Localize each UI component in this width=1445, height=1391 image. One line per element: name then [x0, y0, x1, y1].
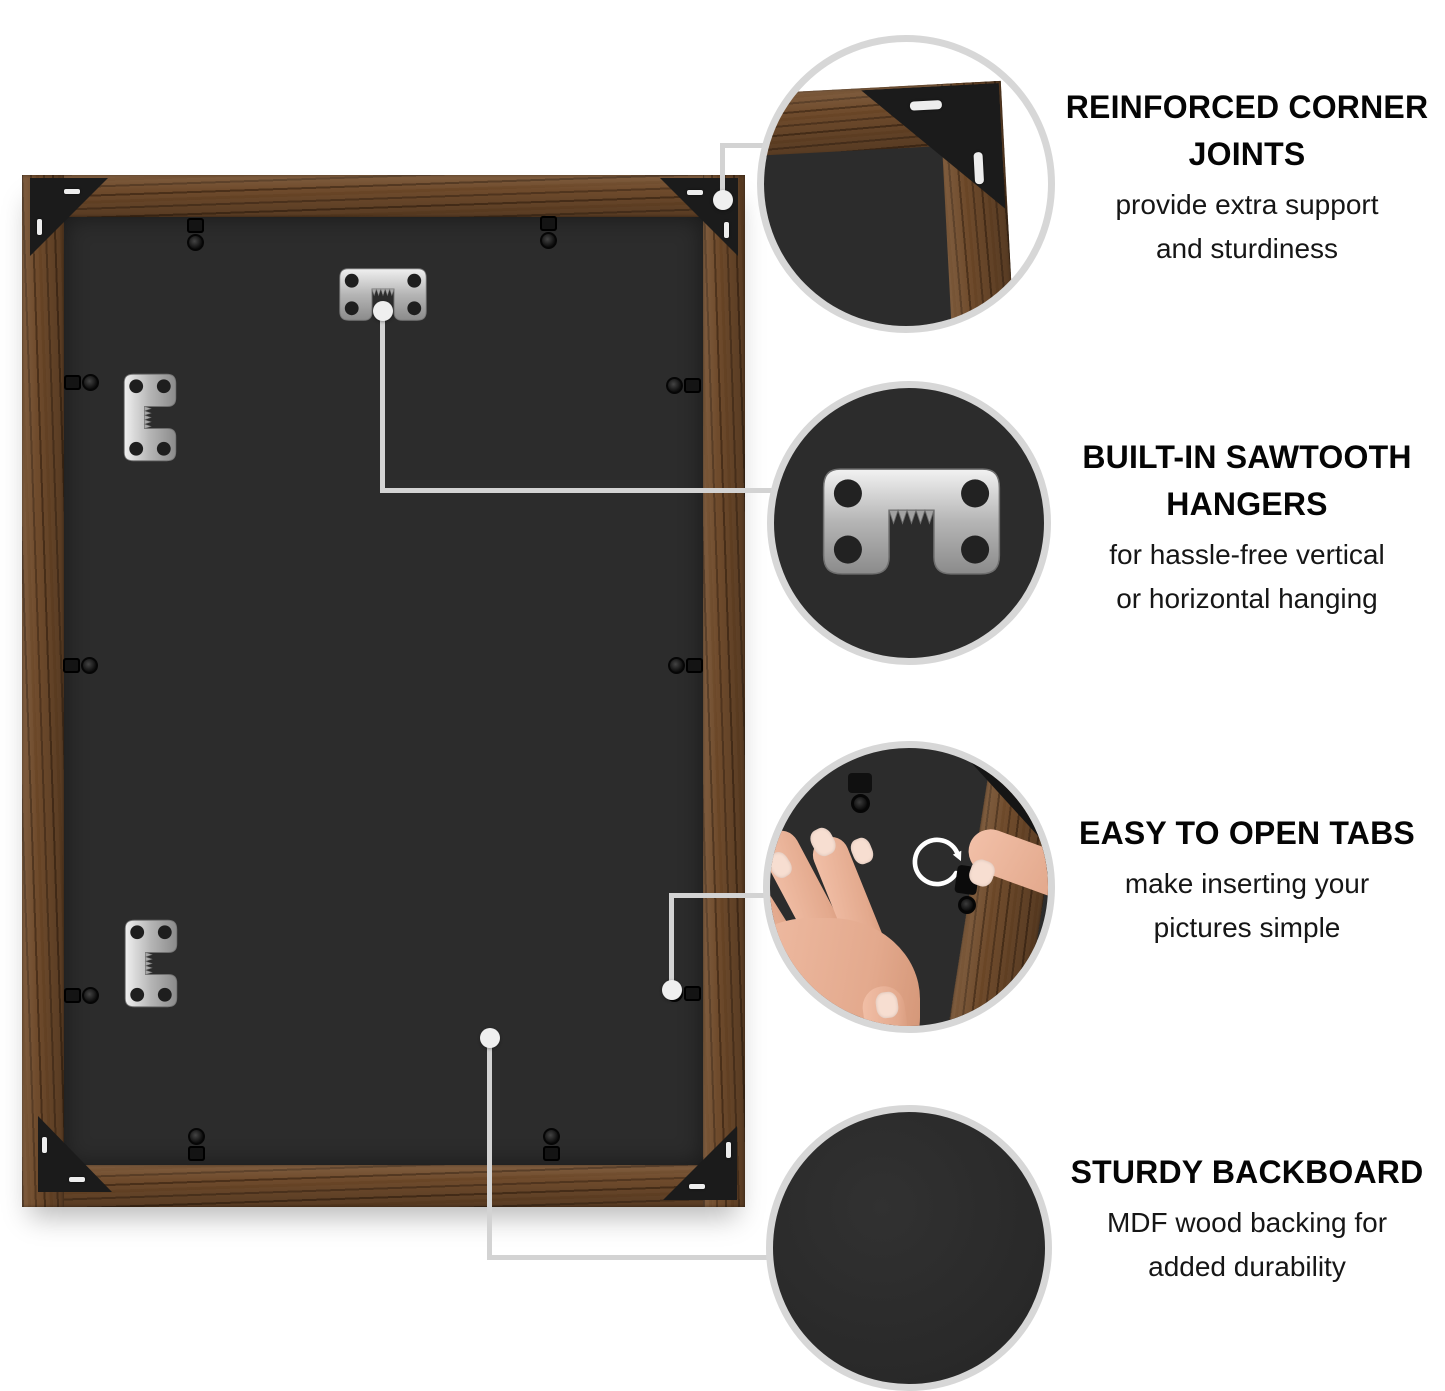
- frame-wood-bottom: [22, 1165, 745, 1207]
- flex-tab-left-3: [64, 987, 99, 1004]
- zoom-staple: [910, 100, 942, 111]
- callout-title-line: JOINTS: [1047, 131, 1445, 178]
- frame-wood-top: [22, 175, 745, 217]
- leader-dot-tab: [662, 980, 682, 1000]
- sawtooth-hanger-zoom: [818, 465, 1005, 578]
- flex-tab-right-1: [666, 377, 701, 394]
- callout-desc-line: or horizontal hanging: [1047, 577, 1445, 621]
- leader-line-hanger: [380, 488, 772, 493]
- callout-title-line: HANGERS: [1047, 481, 1445, 528]
- staple: [726, 1142, 731, 1158]
- flex-tab-top-1: [187, 218, 204, 251]
- leader-line-backboard: [487, 1038, 492, 1260]
- callout-desc-line: for hassle-free vertical: [1047, 533, 1445, 577]
- flex-tab-top-2: [540, 216, 557, 249]
- sawtooth-hanger-left-top: [122, 372, 179, 464]
- callout-title-line: STURDY BACKBOARD: [1047, 1149, 1445, 1196]
- callout-desc-line: added durability: [1047, 1245, 1445, 1289]
- flex-tab-bottom-2: [543, 1128, 560, 1161]
- corner-zoom-photo: [757, 35, 1055, 333]
- zoom-open-tab-screw: [958, 896, 976, 914]
- callout-text-corner-joints: REINFORCED CORNER JOINTS provide extra s…: [1047, 84, 1445, 271]
- leader-line-hanger: [380, 311, 385, 493]
- flex-tab-right-2: [668, 657, 703, 674]
- staple: [42, 1137, 47, 1153]
- zoom-staple: [973, 152, 984, 184]
- leader-dot-backboard: [480, 1028, 500, 1048]
- callout-desc-line: MDF wood backing for: [1047, 1201, 1445, 1245]
- callout-desc-line: and sturdiness: [1047, 227, 1445, 271]
- flex-tab-left-1: [64, 374, 99, 391]
- callout-title-line: BUILT-IN SAWTOOTH: [1047, 434, 1445, 481]
- staple: [37, 219, 42, 235]
- callout-circle-sawtooth: [767, 381, 1051, 665]
- staple: [64, 189, 80, 194]
- leader-line-tab: [669, 893, 674, 992]
- flex-tab-bottom-1: [188, 1128, 205, 1161]
- flex-tab-left-2: [63, 657, 98, 674]
- leader-line-backboard: [487, 1255, 769, 1260]
- callout-desc-line: pictures simple: [1047, 906, 1445, 950]
- staple: [69, 1177, 85, 1182]
- staple: [689, 1184, 705, 1189]
- zoom-tab-clip: [848, 773, 872, 793]
- callout-circle-open-tabs: [763, 741, 1055, 1033]
- callout-text-backboard: STURDY BACKBOARD MDF wood backing for ad…: [1047, 1149, 1445, 1289]
- callout-desc-line: provide extra support: [1047, 183, 1445, 227]
- callout-title-line: REINFORCED CORNER: [1047, 84, 1445, 131]
- zoom-backboard: [757, 146, 953, 333]
- staple: [687, 190, 703, 195]
- frame-wood-left: [22, 175, 64, 1207]
- sawtooth-hanger-left-bottom: [123, 918, 180, 1010]
- infographic-canvas: REINFORCED CORNER JOINTS provide extra s…: [0, 0, 1445, 1391]
- leader-line-tab: [669, 893, 766, 898]
- staple: [724, 222, 729, 238]
- frame-wood-right: [703, 175, 745, 1207]
- callout-desc-line: make inserting your: [1047, 862, 1445, 906]
- callout-text-sawtooth: BUILT-IN SAWTOOTH HANGERS for hassle-fre…: [1047, 434, 1445, 621]
- leader-dot-hanger: [373, 301, 393, 321]
- callout-circle-corner-joints: [757, 35, 1055, 333]
- callout-circle-backboard: [766, 1105, 1052, 1391]
- leader-dot-corner: [713, 190, 733, 210]
- zoom-tab-screw: [851, 794, 870, 813]
- callout-title-line: EASY TO OPEN TABS: [1047, 810, 1445, 857]
- callout-text-open-tabs: EASY TO OPEN TABS make inserting your pi…: [1047, 810, 1445, 950]
